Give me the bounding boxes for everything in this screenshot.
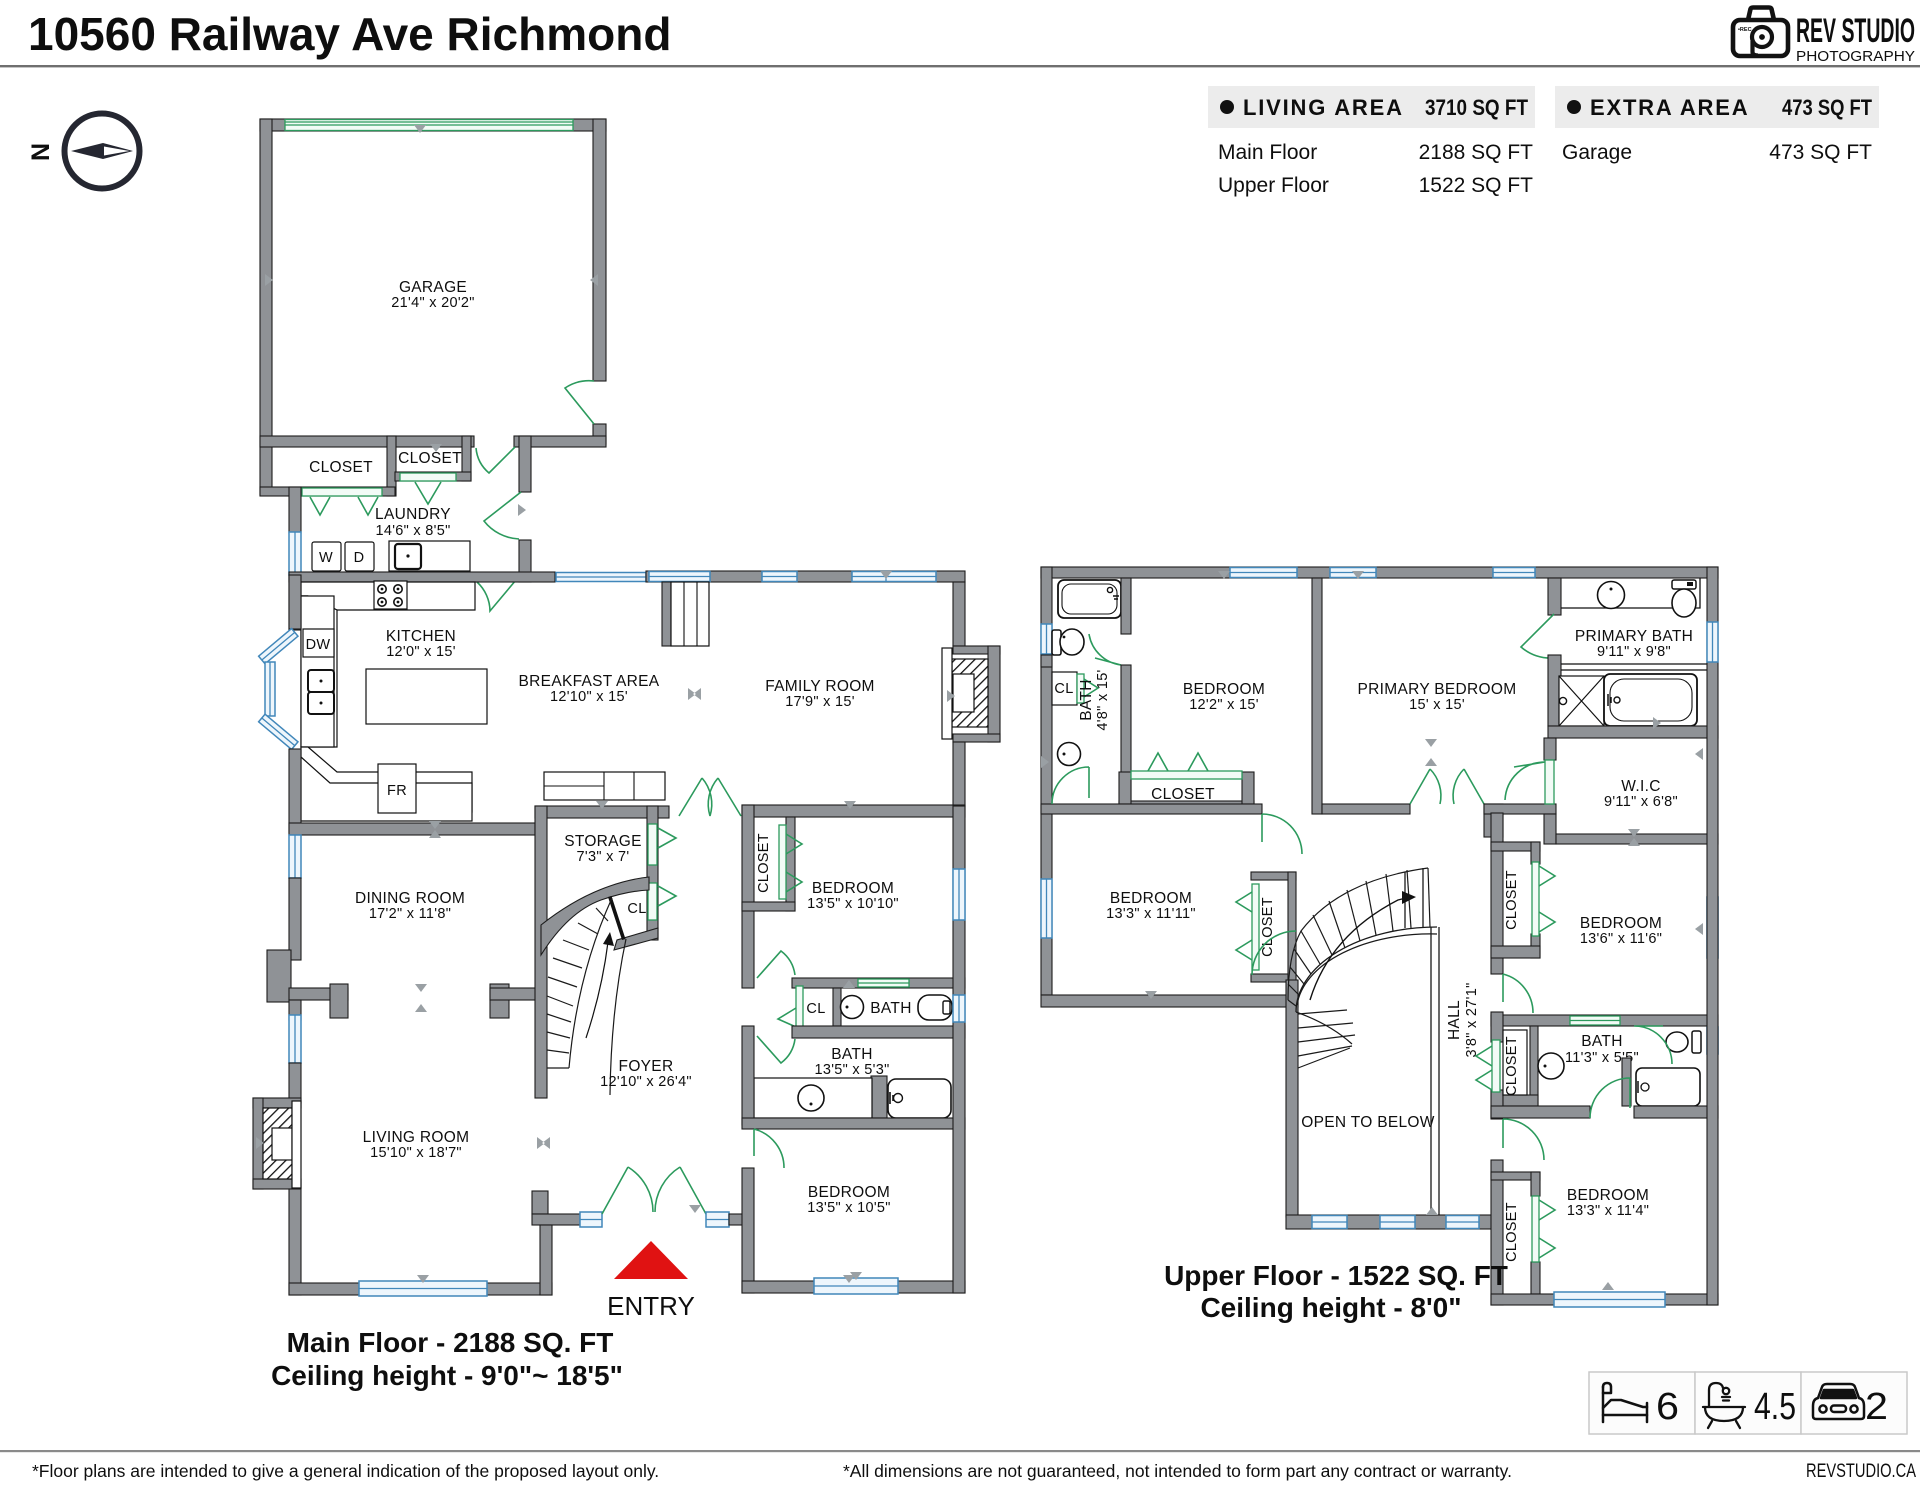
svg-text:CL: CL <box>806 1001 825 1017</box>
svg-text:21'4" x 20'2": 21'4" x 20'2" <box>391 295 474 311</box>
svg-text:DW: DW <box>306 637 331 653</box>
svg-text:BEDROOM: BEDROOM <box>1183 681 1265 698</box>
svg-text:3710 SQ FT: 3710 SQ FT <box>1425 95 1528 120</box>
svg-text:13'3" x 11'11": 13'3" x 11'11" <box>1106 906 1196 922</box>
svg-text:*All dimensions are not guaran: *All dimensions are not guaranteed, not … <box>843 1461 1512 1481</box>
svg-text:12'0" x 15': 12'0" x 15' <box>386 644 456 660</box>
svg-text:FAMILY ROOM: FAMILY ROOM <box>765 678 875 695</box>
svg-text:W: W <box>319 550 333 566</box>
svg-text:12'10" x 15': 12'10" x 15' <box>550 689 628 705</box>
svg-text:OPEN TO BELOW: OPEN TO BELOW <box>1301 1114 1434 1131</box>
svg-text:4.5: 4.5 <box>1754 1386 1796 1428</box>
svg-text:12'10" x 26'4": 12'10" x 26'4" <box>600 1074 692 1090</box>
svg-text:13'5" x 10'10": 13'5" x 10'10" <box>807 896 899 912</box>
svg-text:LIVING ROOM: LIVING ROOM <box>363 1129 470 1146</box>
svg-text:BEDROOM: BEDROOM <box>1580 915 1662 932</box>
svg-text:CLOSET: CLOSET <box>309 459 373 476</box>
svg-text:4'8" x 15': 4'8" x 15' <box>1095 669 1111 730</box>
svg-text:CLOSET: CLOSET <box>398 450 462 467</box>
svg-text:BEDROOM: BEDROOM <box>808 1184 890 1201</box>
svg-text:13'5" x 10'5": 13'5" x 10'5" <box>807 1200 890 1216</box>
svg-text:15'10" x 18'7": 15'10" x 18'7" <box>370 1145 462 1161</box>
svg-text:BEDROOM: BEDROOM <box>812 880 894 897</box>
svg-text:Ceiling height - 8'0": Ceiling height - 8'0" <box>1200 1292 1461 1323</box>
svg-text:3'8" x 27'1": 3'8" x 27'1" <box>1464 982 1480 1057</box>
svg-text:Main Floor - 2188 SQ. FT: Main Floor - 2188 SQ. FT <box>287 1327 614 1358</box>
svg-text:PHOTOGRAPHY: PHOTOGRAPHY <box>1796 48 1915 65</box>
svg-text:2: 2 <box>1865 1386 1888 1428</box>
svg-text:FR: FR <box>387 783 407 799</box>
svg-text:7'3" x 7': 7'3" x 7' <box>577 849 630 865</box>
svg-text:BATH: BATH <box>870 1000 911 1017</box>
svg-text:17'2" x 11'8": 17'2" x 11'8" <box>369 906 451 922</box>
svg-text:CLOSET: CLOSET <box>1260 897 1276 957</box>
svg-text:473 SQ FT: 473 SQ FT <box>1769 141 1872 164</box>
svg-text:EXTRA AREA: EXTRA AREA <box>1590 95 1749 120</box>
svg-text:2188 SQ FT: 2188 SQ FT <box>1419 141 1534 164</box>
svg-text:CLOSET: CLOSET <box>1504 870 1520 930</box>
svg-text:Upper Floor: Upper Floor <box>1218 174 1329 197</box>
svg-text:*Floor plans are intended to g: *Floor plans are intended to give a gene… <box>32 1461 659 1481</box>
svg-text:9'11" x 6'8": 9'11" x 6'8" <box>1604 794 1678 810</box>
svg-text:FOYER: FOYER <box>619 1058 674 1075</box>
svg-text:W.I.C: W.I.C <box>1621 778 1660 795</box>
svg-text:Garage: Garage <box>1562 141 1632 164</box>
svg-text:BATH: BATH <box>1078 679 1095 720</box>
svg-text:Upper Floor - 1522 SQ. FT: Upper Floor - 1522 SQ. FT <box>1164 1260 1508 1291</box>
svg-text:•REC: •REC <box>1738 27 1752 33</box>
svg-text:13'6" x 11'6": 13'6" x 11'6" <box>1580 931 1662 947</box>
svg-text:REVSTUDIO.CA: REVSTUDIO.CA <box>1806 1461 1916 1482</box>
svg-text:LAUNDRY: LAUNDRY <box>375 506 451 523</box>
svg-text:PRIMARY BATH: PRIMARY BATH <box>1575 628 1693 645</box>
svg-text:1522 SQ FT: 1522 SQ FT <box>1419 174 1534 197</box>
svg-text:BATH: BATH <box>1581 1033 1622 1050</box>
svg-text:BREAKFAST AREA: BREAKFAST AREA <box>519 673 660 690</box>
svg-text:CL: CL <box>627 901 646 917</box>
svg-text:KITCHEN: KITCHEN <box>386 628 456 645</box>
svg-text:ENTRY: ENTRY <box>607 1291 695 1321</box>
svg-text:REV STUDIO: REV STUDIO <box>1796 12 1915 50</box>
svg-text:473 SQ FT: 473 SQ FT <box>1782 95 1872 120</box>
svg-text:DINING ROOM: DINING ROOM <box>355 890 465 907</box>
svg-text:12'2" x 15': 12'2" x 15' <box>1189 697 1259 713</box>
svg-text:6: 6 <box>1656 1386 1679 1428</box>
svg-text:17'9" x 15': 17'9" x 15' <box>785 694 855 710</box>
svg-text:CLOSET: CLOSET <box>1504 1202 1520 1262</box>
svg-text:13'3" x 11'4": 13'3" x 11'4" <box>1567 1203 1649 1219</box>
svg-text:Ceiling height - 9'0"~ 18'5": Ceiling height - 9'0"~ 18'5" <box>271 1360 623 1391</box>
svg-text:BEDROOM: BEDROOM <box>1110 890 1192 907</box>
svg-text:PRIMARY BEDROOM: PRIMARY BEDROOM <box>1358 681 1517 698</box>
svg-text:D: D <box>354 550 365 566</box>
svg-text:10560 Railway Ave Richmond: 10560 Railway Ave Richmond <box>28 8 671 60</box>
svg-text:N: N <box>27 143 55 161</box>
svg-text:9'11" x 9'8": 9'11" x 9'8" <box>1597 644 1671 660</box>
svg-text:LIVING AREA: LIVING AREA <box>1243 95 1404 120</box>
svg-text:GARAGE: GARAGE <box>399 279 467 296</box>
svg-text:STORAGE: STORAGE <box>564 833 642 850</box>
svg-text:15' x 15': 15' x 15' <box>1409 697 1465 713</box>
svg-text:HALL: HALL <box>1446 1000 1463 1040</box>
svg-text:14'6" x 8'5": 14'6" x 8'5" <box>375 523 450 539</box>
svg-text:Main Floor: Main Floor <box>1218 141 1317 164</box>
svg-text:BATH: BATH <box>831 1046 872 1063</box>
svg-text:CLOSET: CLOSET <box>756 833 772 893</box>
svg-text:CLOSET: CLOSET <box>1151 786 1215 803</box>
svg-text:CL: CL <box>1054 681 1073 697</box>
svg-text:CLOSET: CLOSET <box>1504 1036 1520 1096</box>
svg-text:BEDROOM: BEDROOM <box>1567 1187 1649 1204</box>
